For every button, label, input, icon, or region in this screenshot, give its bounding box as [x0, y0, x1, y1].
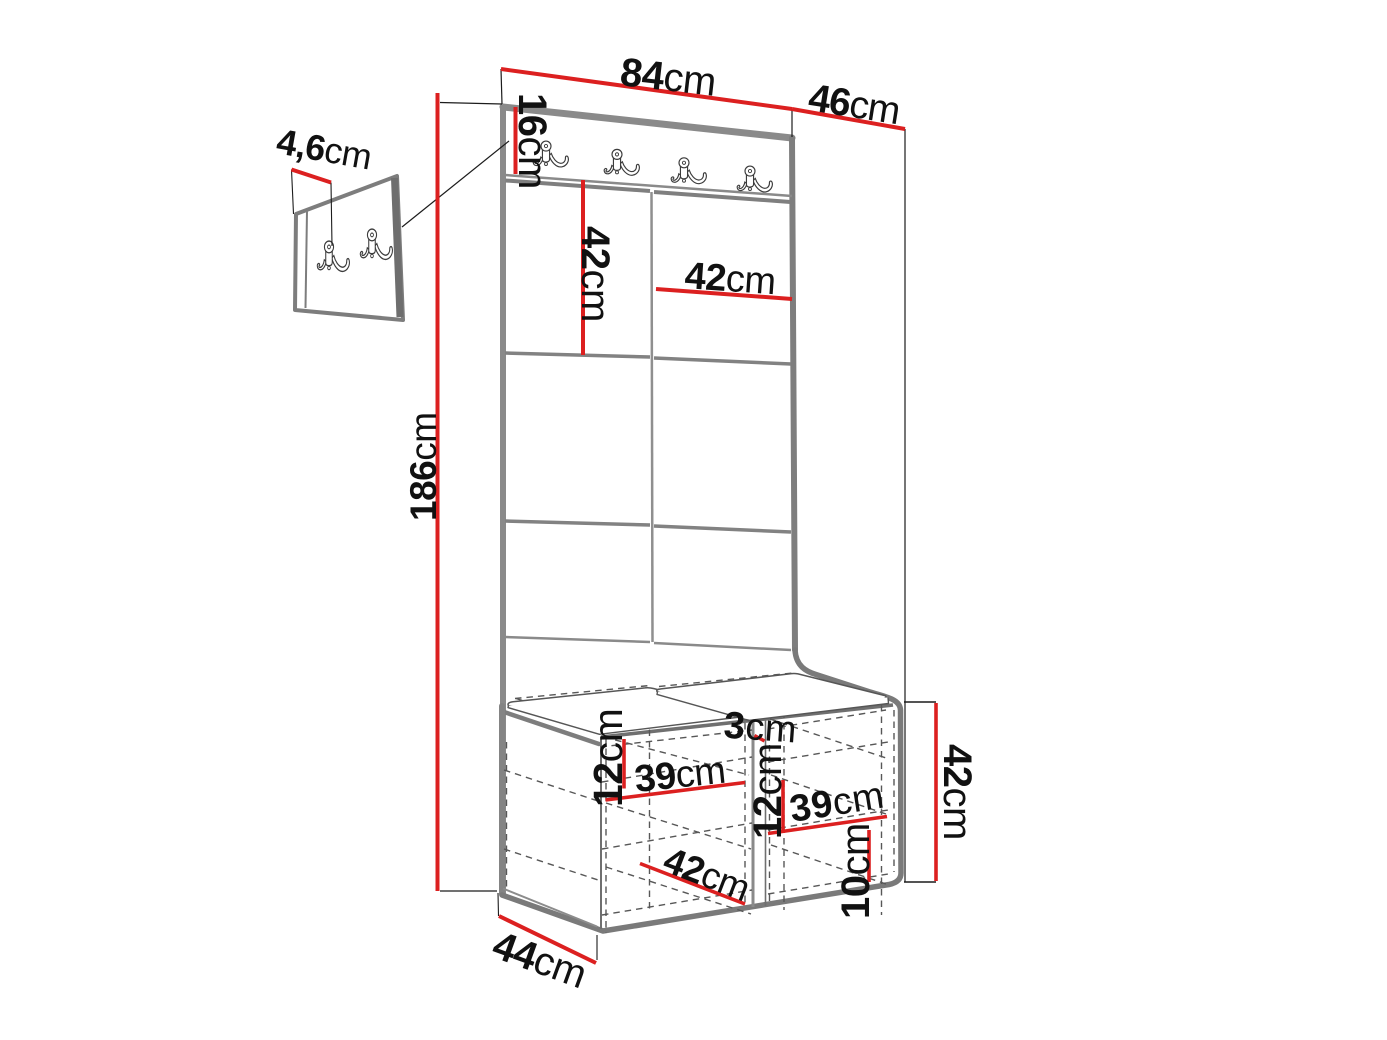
svg-text:4,6cm: 4,6cm: [274, 121, 375, 178]
svg-text:12cm: 12cm: [585, 709, 631, 807]
svg-text:186cm: 186cm: [403, 412, 444, 521]
svg-text:46cm: 46cm: [806, 76, 903, 133]
svg-text:39cm: 39cm: [787, 775, 887, 831]
svg-text:42cm: 42cm: [573, 226, 617, 322]
svg-text:39cm: 39cm: [633, 750, 728, 801]
svg-text:10cm: 10cm: [834, 823, 878, 919]
svg-text:16cm: 16cm: [510, 93, 554, 189]
svg-text:84cm: 84cm: [618, 50, 718, 105]
svg-text:42cm: 42cm: [658, 839, 755, 909]
svg-text:42cm: 42cm: [935, 744, 979, 840]
svg-text:42cm: 42cm: [683, 255, 777, 303]
svg-text:12cm: 12cm: [746, 743, 790, 839]
